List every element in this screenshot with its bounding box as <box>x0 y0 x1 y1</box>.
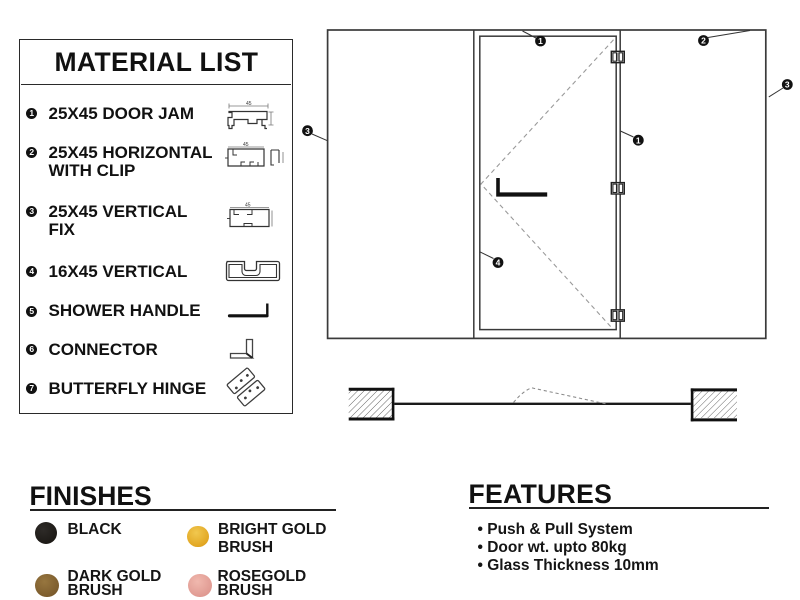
svg-text:1: 1 <box>636 135 641 145</box>
svg-text:3: 3 <box>305 126 310 136</box>
svg-text:2: 2 <box>701 36 706 46</box>
svg-text:45: 45 <box>245 203 251 209</box>
svg-text:4: 4 <box>496 258 501 268</box>
svg-text:45: 45 <box>243 142 249 148</box>
svg-text:3: 3 <box>785 80 790 90</box>
svg-text:1: 1 <box>538 36 543 46</box>
svg-text:45: 45 <box>246 101 252 107</box>
